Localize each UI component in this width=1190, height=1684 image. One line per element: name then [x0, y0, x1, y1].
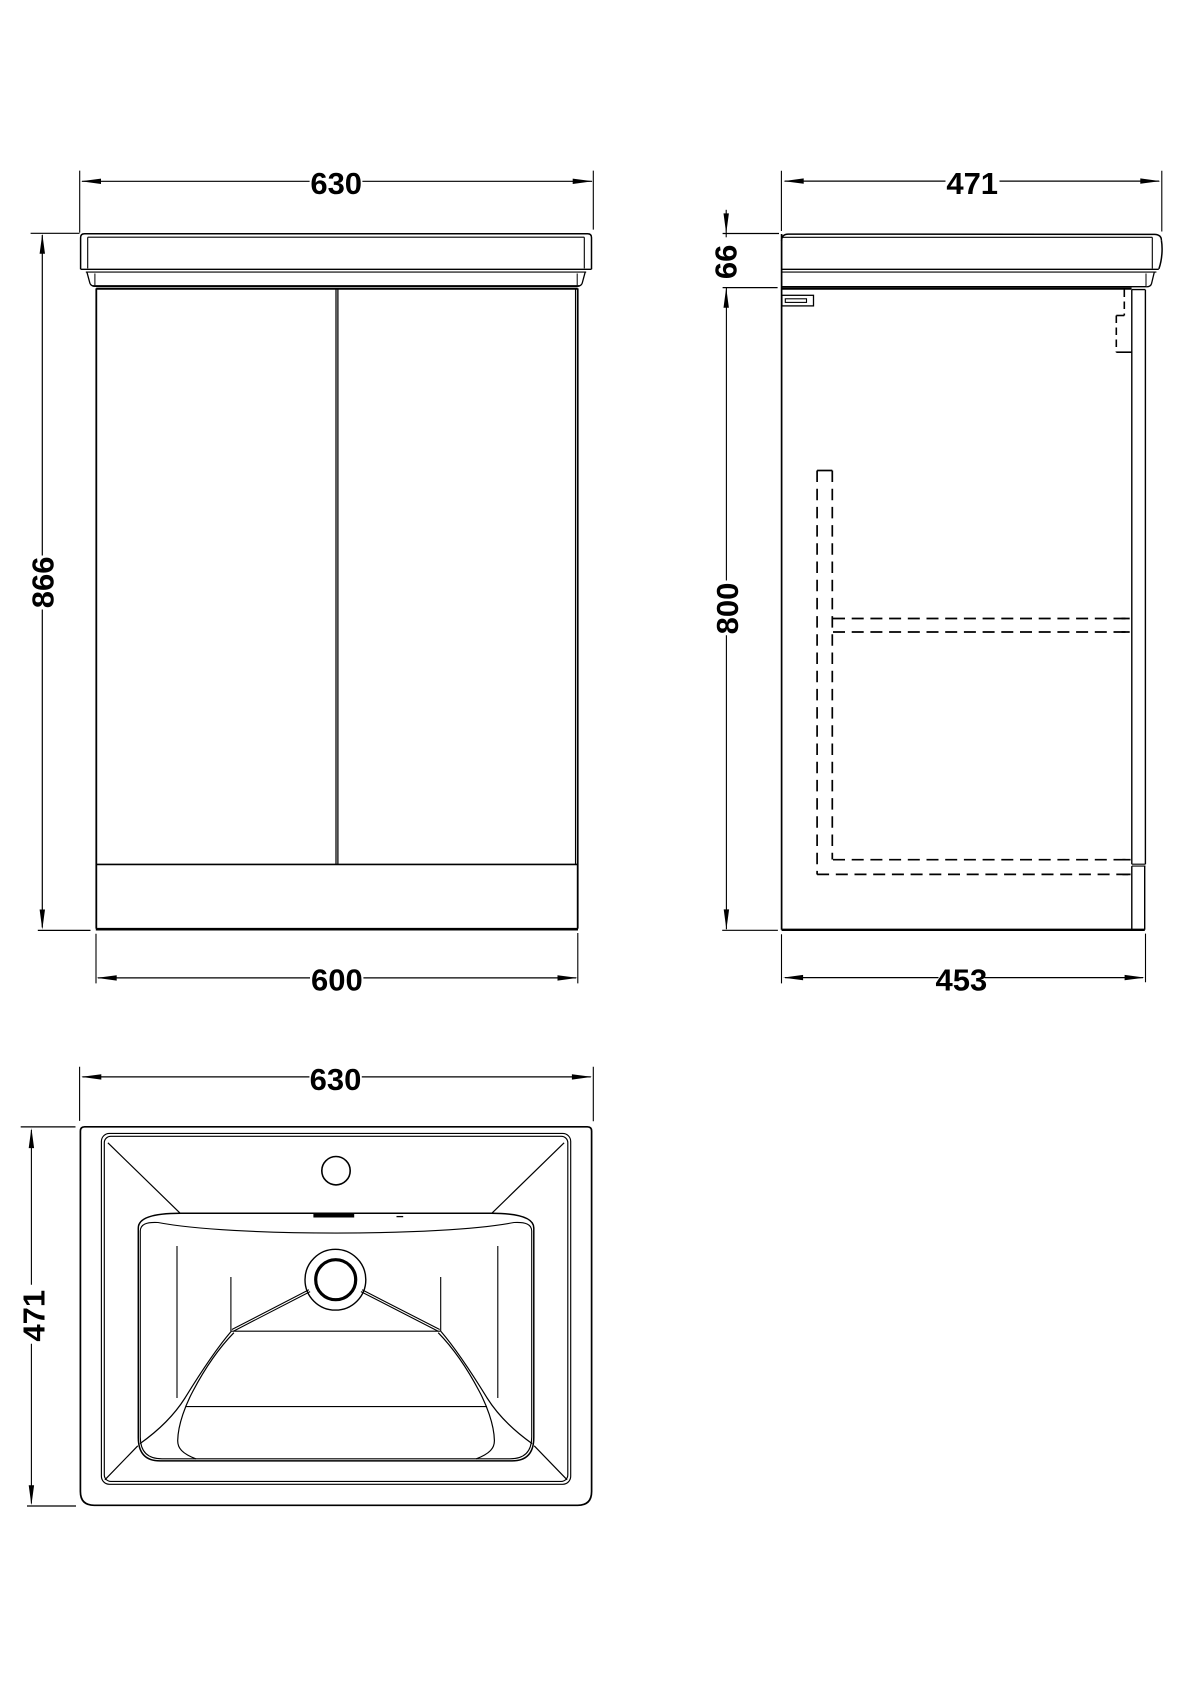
svg-text:471: 471 [946, 166, 998, 201]
svg-text:866: 866 [26, 557, 61, 609]
svg-text:66: 66 [708, 245, 743, 279]
svg-text:600: 600 [311, 963, 363, 998]
svg-text:471: 471 [16, 1290, 51, 1342]
svg-text:800: 800 [710, 583, 745, 635]
svg-text:630: 630 [310, 1062, 362, 1097]
svg-text:453: 453 [936, 962, 988, 997]
svg-text:630: 630 [310, 166, 362, 201]
